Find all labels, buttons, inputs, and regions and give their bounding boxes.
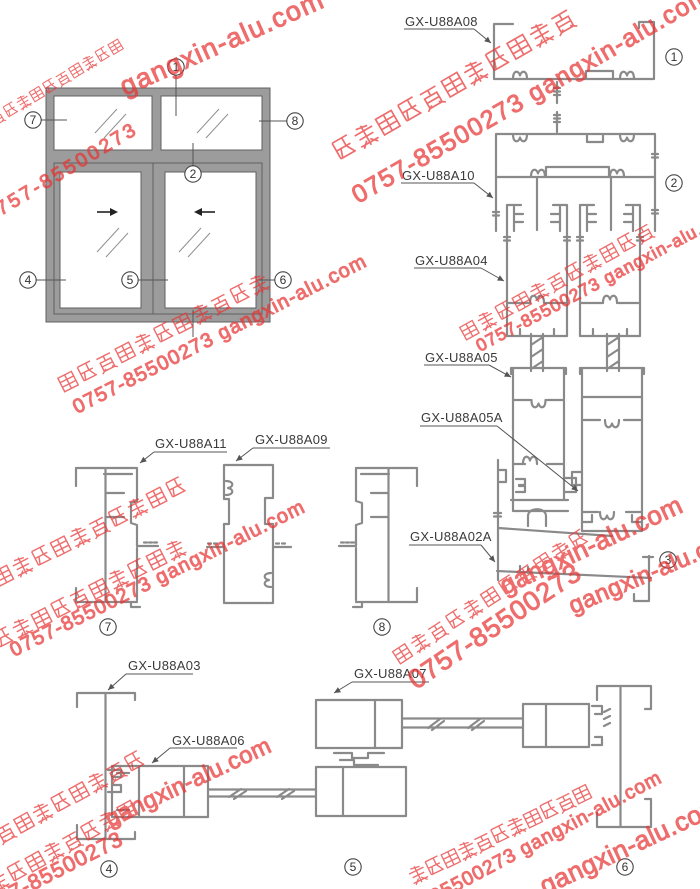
svg-text:0757-85500273: 0757-85500273 <box>403 557 587 695</box>
svg-text:0757-85500273: 0757-85500273 <box>0 118 142 227</box>
svg-text:5: 5 <box>127 273 134 287</box>
svg-text:gangxin-alu.com: gangxin-alu.com <box>115 0 329 101</box>
svg-text:4: 4 <box>25 273 32 287</box>
svg-text:0757-85500273 gangxin-alu.com: 0757-85500273 gangxin-alu.com <box>6 496 309 662</box>
svg-text:4: 4 <box>106 862 113 876</box>
svg-text:0757-85500273 gangxin-alu.com: 0757-85500273 gangxin-alu.com <box>69 250 371 418</box>
svg-text:GX-U88A08: GX-U88A08 <box>405 14 478 29</box>
svg-text:2: 2 <box>190 167 197 181</box>
svg-text:1: 1 <box>671 50 678 64</box>
svg-text:GX-U88A09: GX-U88A09 <box>255 432 328 447</box>
svg-text:GX-U88A03: GX-U88A03 <box>128 658 201 673</box>
svg-text:GX-U88A02A: GX-U88A02A <box>410 529 492 544</box>
svg-text:8: 8 <box>379 620 386 634</box>
svg-text:6: 6 <box>280 273 287 287</box>
svg-text:7: 7 <box>30 113 37 127</box>
svg-text:0757-85500273: 0757-85500273 <box>0 827 127 889</box>
svg-text:GX-U88A05A: GX-U88A05A <box>421 410 503 425</box>
svg-text:7: 7 <box>105 620 112 634</box>
svg-text:5: 5 <box>350 860 357 874</box>
svg-text:8: 8 <box>292 114 299 128</box>
svg-text:GX-U88A04: GX-U88A04 <box>415 253 488 268</box>
svg-text:2: 2 <box>671 176 678 190</box>
svg-text:GX-U88A11: GX-U88A11 <box>155 436 227 451</box>
